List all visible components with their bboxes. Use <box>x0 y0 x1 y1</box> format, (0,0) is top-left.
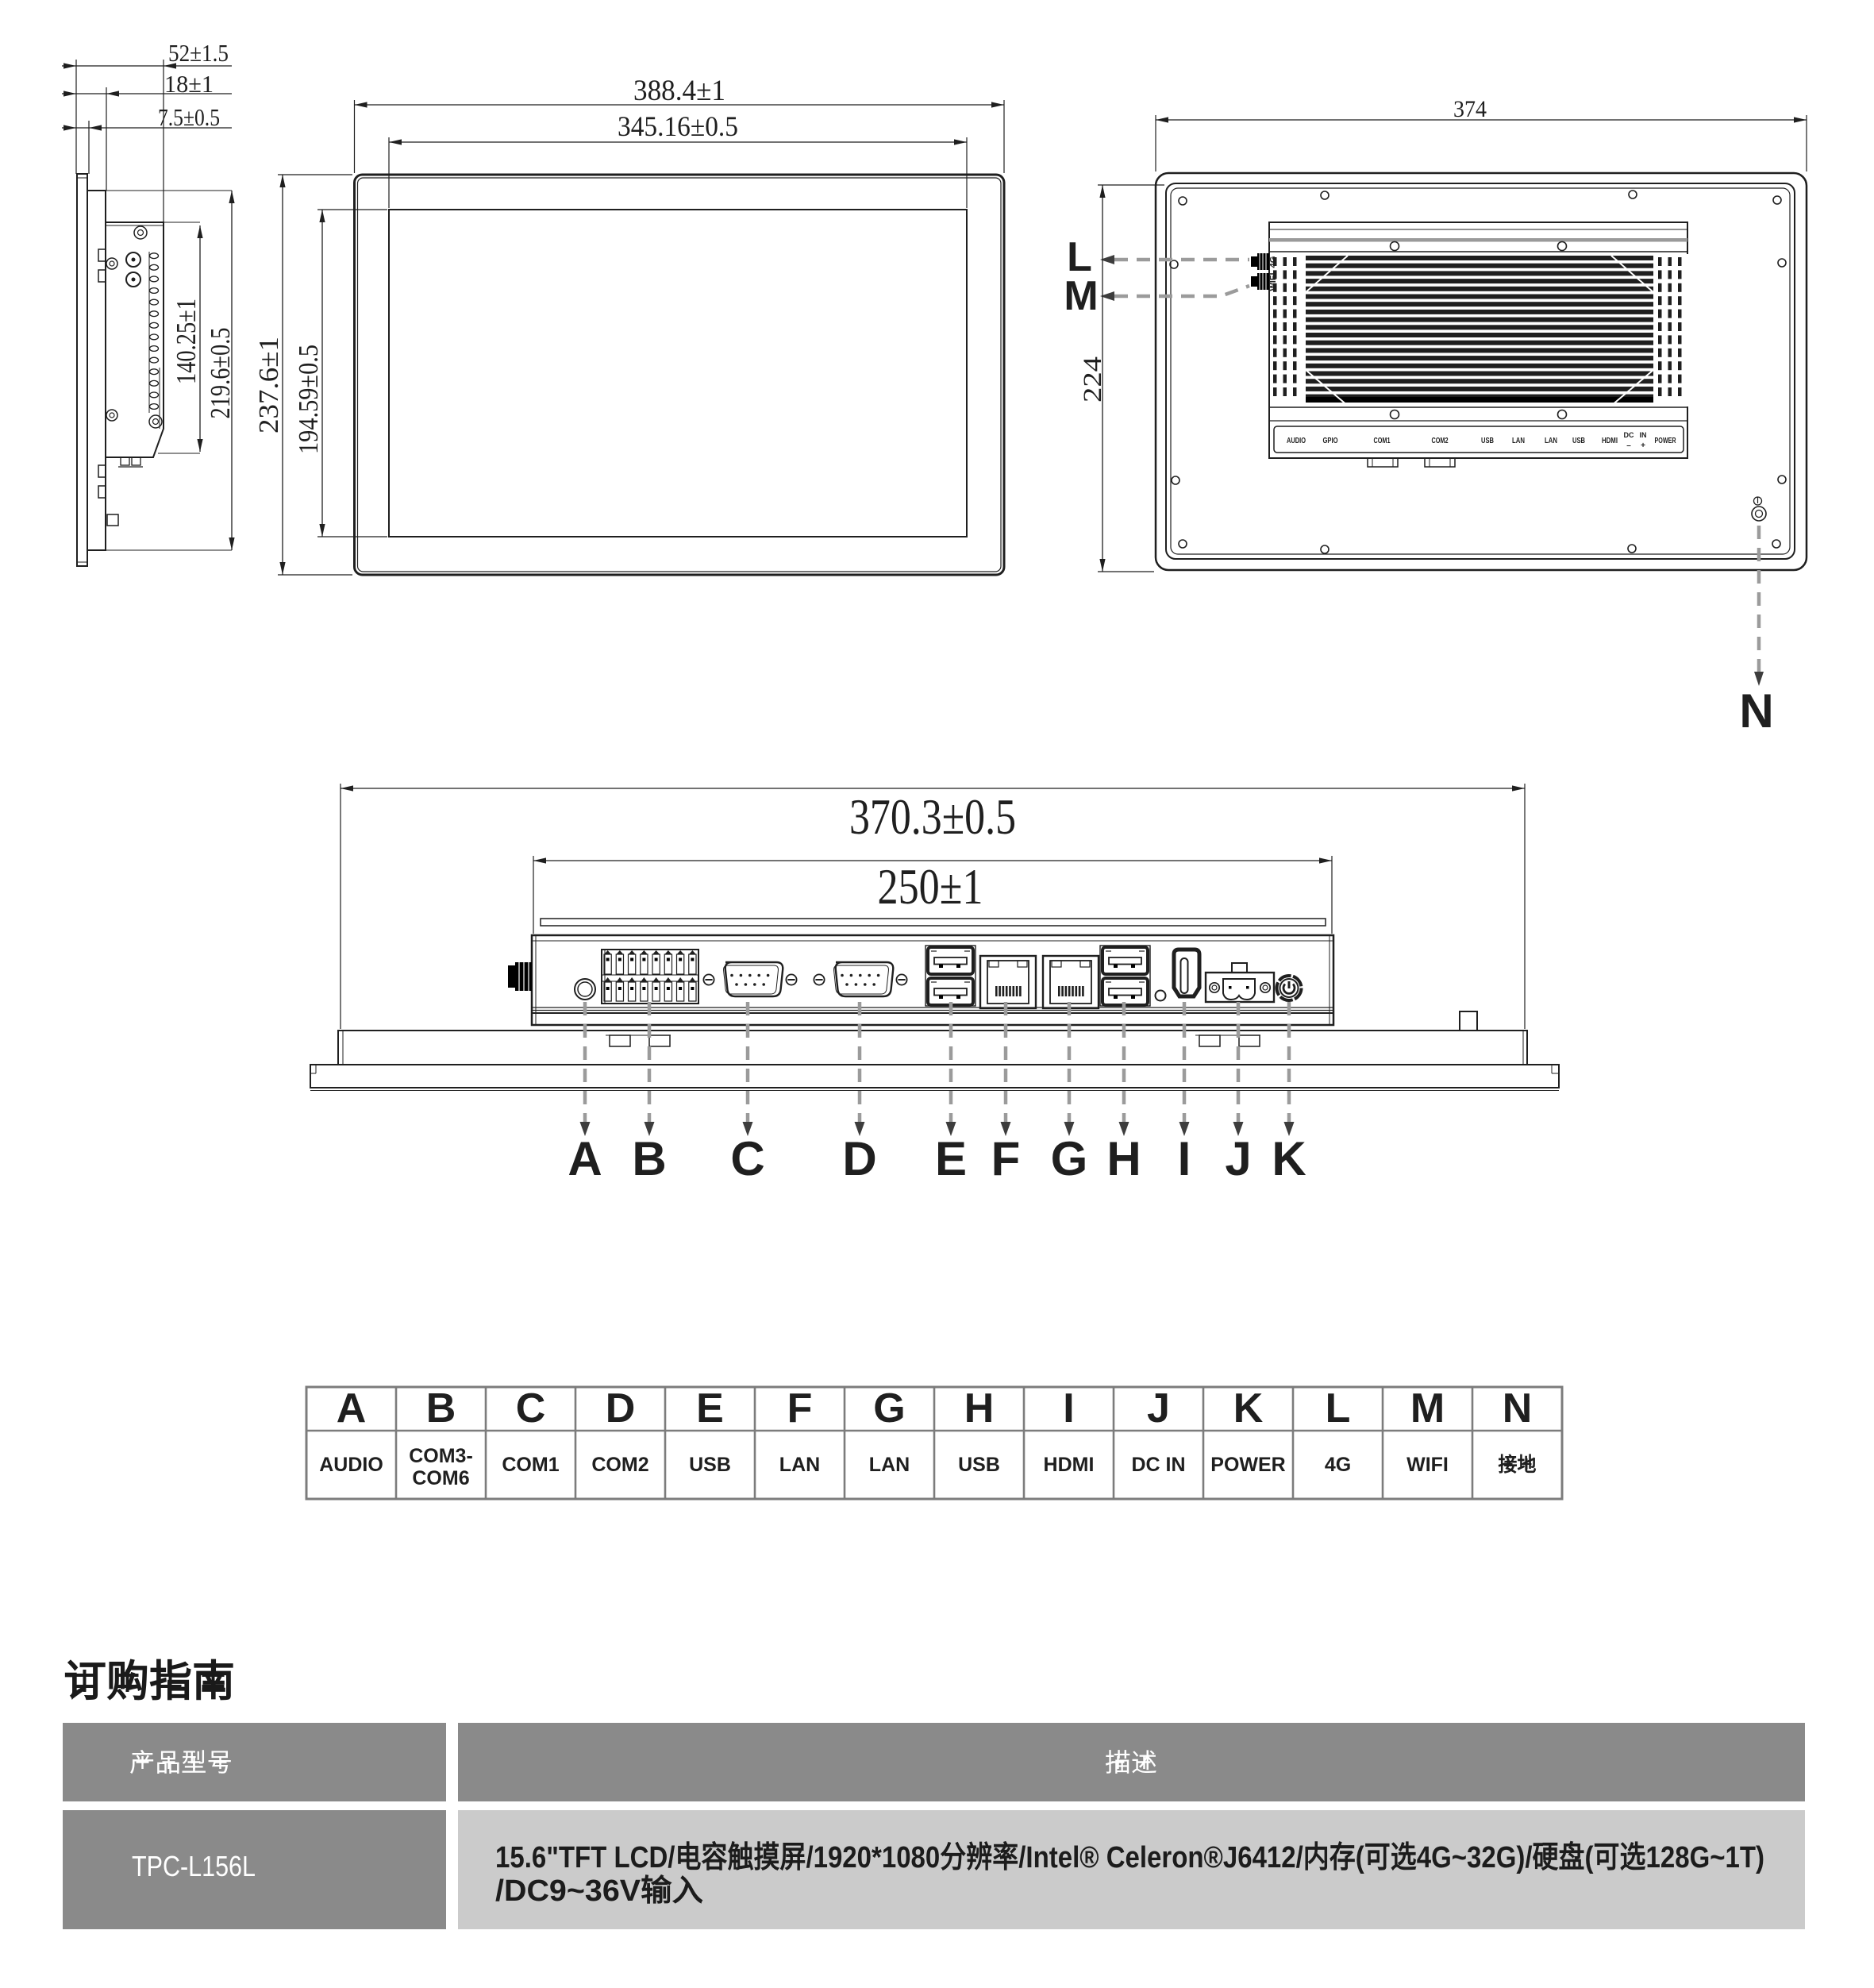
svg-text:COM2: COM2 <box>1432 437 1449 445</box>
svg-text:COM6: COM6 <box>412 1467 469 1489</box>
svg-text:D: D <box>606 1385 636 1431</box>
svg-text:A: A <box>568 1132 602 1185</box>
svg-text:I: I <box>1178 1132 1191 1185</box>
svg-text:USB: USB <box>689 1454 731 1476</box>
svg-text:G: G <box>873 1385 905 1431</box>
svg-text:H: H <box>964 1385 995 1431</box>
svg-text:AUDIO: AUDIO <box>1287 437 1306 445</box>
svg-text:AUDIO: AUDIO <box>319 1454 383 1476</box>
svg-text:HDMI: HDMI <box>1044 1454 1095 1476</box>
svg-text:WIFI: WIFI <box>1269 272 1278 291</box>
svg-text:237.6±1: 237.6±1 <box>253 337 284 433</box>
svg-text:COM1: COM1 <box>502 1454 559 1476</box>
svg-text:388.4±1: 388.4±1 <box>633 75 725 107</box>
svg-text:15.6"TFT LCD/电容触摸屏/1920*1080分辨: 15.6"TFT LCD/电容触摸屏/1920*1080分辨率/Intel® C… <box>495 1840 1764 1874</box>
svg-text:/DC9~36V输入: /DC9~36V输入 <box>495 1874 703 1908</box>
svg-text:L: L <box>1326 1385 1351 1431</box>
svg-text:250±1: 250±1 <box>878 858 983 915</box>
svg-text:7.5±0.5: 7.5±0.5 <box>158 103 220 131</box>
svg-text:J: J <box>1147 1385 1170 1431</box>
svg-text:COM2: COM2 <box>591 1454 648 1476</box>
svg-text:K: K <box>1272 1132 1306 1185</box>
svg-text:B: B <box>426 1385 456 1431</box>
svg-text:USB: USB <box>1572 437 1585 445</box>
svg-text:I: I <box>1063 1385 1074 1431</box>
svg-text:F: F <box>991 1132 1021 1185</box>
svg-text:F: F <box>787 1385 813 1431</box>
svg-text:K: K <box>1233 1385 1264 1431</box>
svg-text:4G: 4G <box>1325 1454 1351 1476</box>
svg-text:TPC-L156L: TPC-L156L <box>132 1850 256 1882</box>
svg-text:N: N <box>1503 1385 1533 1431</box>
svg-text:订购指南: 订购指南 <box>63 1658 235 1705</box>
svg-text:IN: IN <box>1640 431 1647 439</box>
svg-text:LAN: LAN <box>1512 437 1525 445</box>
svg-text:194.59±0.5: 194.59±0.5 <box>293 345 324 454</box>
svg-text:M: M <box>1064 273 1098 319</box>
svg-text:G: G <box>1051 1132 1088 1185</box>
svg-text:C: C <box>516 1385 546 1431</box>
svg-text:HDMI: HDMI <box>1602 437 1618 445</box>
svg-text:D: D <box>842 1132 876 1185</box>
svg-text:LAN: LAN <box>1545 437 1557 445</box>
svg-text:–: – <box>1626 441 1631 450</box>
svg-text:4G: 4G <box>1269 256 1278 268</box>
svg-text:H: H <box>1106 1132 1141 1185</box>
svg-text:E: E <box>935 1132 967 1185</box>
svg-text:DC: DC <box>1624 431 1634 439</box>
svg-text:J: J <box>1225 1132 1251 1185</box>
svg-text:374: 374 <box>1453 96 1487 122</box>
svg-text:GPIO: GPIO <box>1323 437 1338 445</box>
svg-text:N: N <box>1739 684 1773 738</box>
svg-text:POWER: POWER <box>1210 1454 1285 1476</box>
svg-text:COM3-: COM3- <box>409 1445 473 1467</box>
svg-text:LAN: LAN <box>779 1454 820 1476</box>
svg-text:USB: USB <box>958 1454 1000 1476</box>
svg-text:E: E <box>696 1385 724 1431</box>
svg-text:WIFI: WIFI <box>1406 1454 1449 1476</box>
svg-text:52±1.5: 52±1.5 <box>168 39 229 67</box>
svg-text:370.3±0.5: 370.3±0.5 <box>849 788 1016 845</box>
svg-text:DC IN: DC IN <box>1131 1454 1185 1476</box>
svg-text:A: A <box>337 1385 367 1431</box>
svg-text:B: B <box>632 1132 666 1185</box>
svg-text:COM1: COM1 <box>1374 437 1391 445</box>
svg-text:+: + <box>1641 441 1645 450</box>
svg-text:USB: USB <box>1481 437 1494 445</box>
svg-text:LAN: LAN <box>869 1454 910 1476</box>
svg-text:345.16±0.5: 345.16±0.5 <box>618 110 738 142</box>
svg-text:POWER: POWER <box>1655 437 1677 445</box>
svg-text:140.25±1: 140.25±1 <box>171 299 202 384</box>
svg-text:219.6±0.5: 219.6±0.5 <box>205 328 236 419</box>
svg-text:224: 224 <box>1079 356 1107 403</box>
svg-text:C: C <box>730 1132 764 1185</box>
svg-text:M: M <box>1410 1385 1445 1431</box>
